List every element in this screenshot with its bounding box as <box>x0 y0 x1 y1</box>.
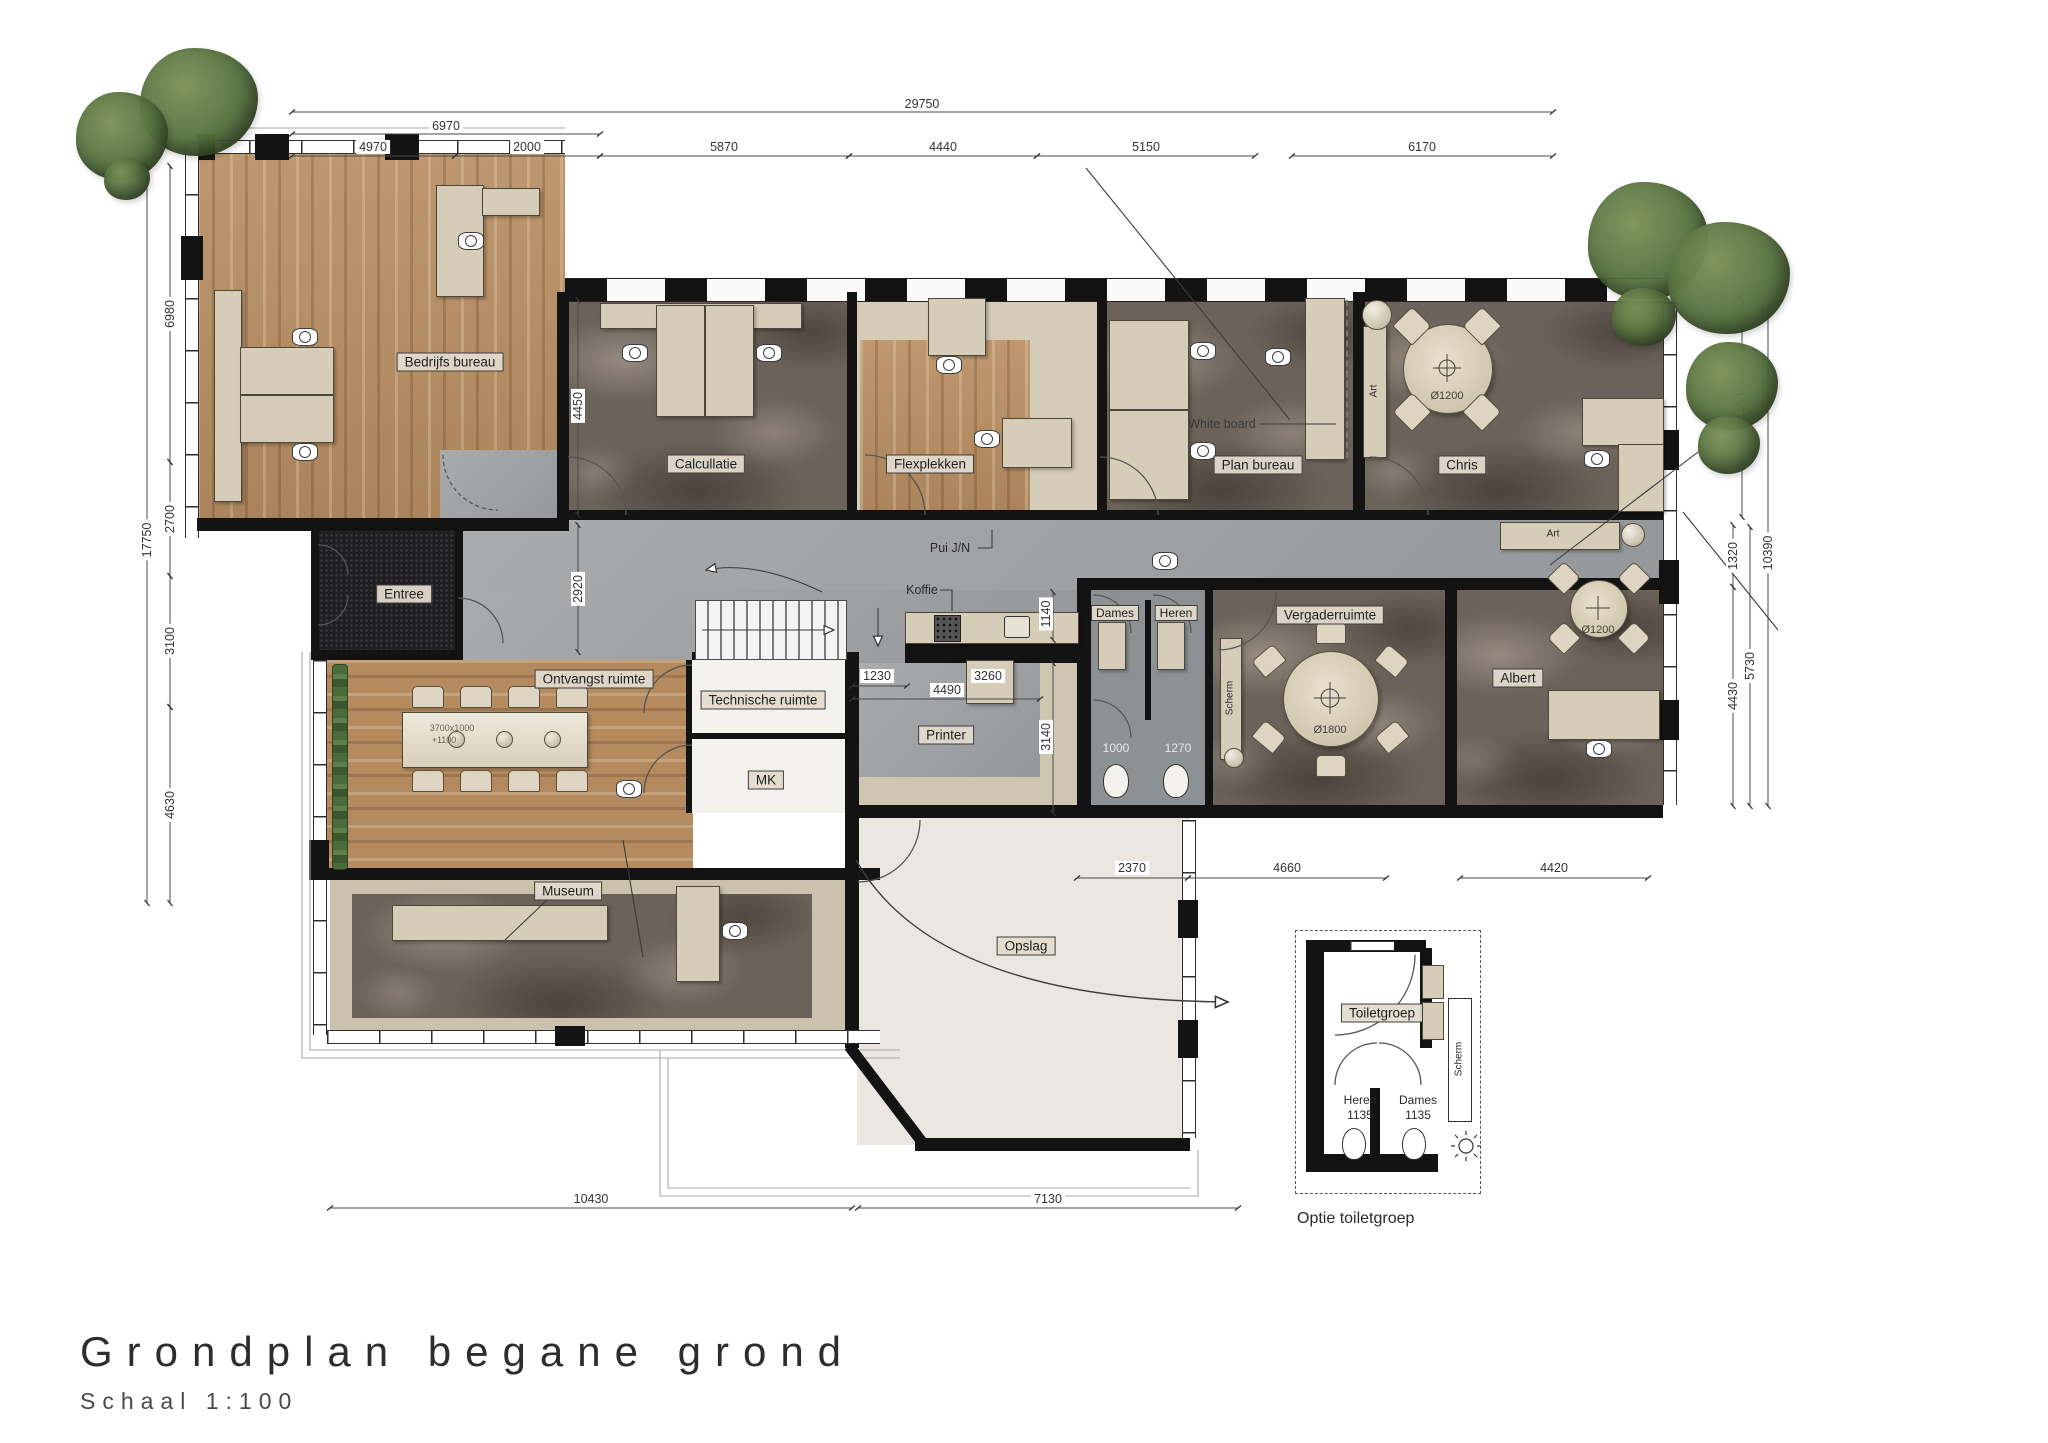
dim-left: 2700 <box>163 502 177 536</box>
person-walking <box>616 780 642 798</box>
dim-left: 3100 <box>163 624 177 658</box>
wall-pier <box>1659 560 1679 604</box>
scherm-annotation: Scherm <box>1225 681 1236 715</box>
room-label-entree: Entree <box>376 585 432 604</box>
dim-right: 4430 <box>1726 679 1740 713</box>
table-grommet <box>544 731 561 748</box>
wall-segment <box>1097 292 1107 520</box>
table-spec: 3700x1000 <box>430 723 475 733</box>
wall-pier <box>1659 700 1679 740</box>
person-at-desk <box>622 344 648 362</box>
dim-interior: 4420 <box>1537 861 1571 875</box>
chair <box>1316 755 1346 777</box>
chair <box>412 770 444 792</box>
dim-interior: 3140 <box>1039 720 1053 754</box>
room-label-vergader: Vergaderruimte <box>1276 606 1384 625</box>
desk <box>1109 410 1189 500</box>
person-walking <box>1152 552 1178 570</box>
person-at-desk <box>1265 348 1291 366</box>
table-diameter: Ø1800 <box>1313 724 1346 736</box>
whiteboard-annotation: White board <box>1188 417 1255 431</box>
room-label-heren: Heren <box>1155 605 1198 621</box>
room-label-albert: Albert <box>1492 669 1543 688</box>
wall-pier <box>555 1026 585 1046</box>
room-label-technische: Technische ruimte <box>701 691 826 710</box>
dim-top: 4970 <box>356 140 390 154</box>
wall-segment <box>1077 590 1091 815</box>
chair <box>556 686 588 708</box>
room-label-planbureau: Plan bureau <box>1214 456 1303 475</box>
dim-interior: 1140 <box>1039 598 1053 631</box>
toilet-icon <box>1163 764 1189 798</box>
dim-bottom: 10430 <box>571 1192 612 1206</box>
inset-caption: Optie toiletgroep <box>1297 1210 1414 1228</box>
sphere-lamp <box>1224 748 1244 768</box>
wall-segment <box>1205 590 1213 805</box>
dim-left: 6980 <box>163 297 177 331</box>
dim-left: 4630 <box>163 788 177 822</box>
art-annotation: Art <box>1547 529 1560 540</box>
wall-pier <box>385 134 419 160</box>
room-label-ontvangst: Ontvangst ruimte <box>535 670 654 689</box>
wall-segment <box>1445 590 1457 805</box>
person-at-desk <box>936 356 962 374</box>
desk <box>482 188 540 216</box>
room-label-opslag: Opslag <box>997 937 1056 956</box>
wc-sink <box>1157 622 1185 670</box>
staircase <box>695 600 847 660</box>
inset-dames-dim: 1135 <box>1405 1108 1431 1122</box>
floor-plan-sheet: Bedrijfs bureau Calcullatie Flexplekken … <box>0 0 2048 1443</box>
room-label-printer: Printer <box>918 726 974 745</box>
wall-pier <box>1178 1020 1198 1058</box>
wall-opslag-bottom <box>915 1138 1190 1151</box>
wall-segment <box>847 292 857 520</box>
room-label-bedrijfs: Bedrijfs bureau <box>397 353 504 372</box>
dim-top: 6170 <box>1405 140 1439 154</box>
wall-museum-top <box>327 868 880 880</box>
person-at-desk <box>756 344 782 362</box>
sideboard <box>1500 522 1620 550</box>
dim-bottom: 7130 <box>1031 1192 1065 1206</box>
wall-pier <box>181 236 203 280</box>
dim-right: 1320 <box>1726 539 1740 573</box>
dim-interior: 1230 <box>860 669 894 683</box>
page-title: Grondplan begane grond <box>80 1328 855 1376</box>
wall-entree-bottom <box>311 650 463 660</box>
dim-interior: 2370 <box>1115 861 1149 875</box>
scherm-annotation: Scherm <box>1454 1042 1465 1076</box>
chair <box>460 770 492 792</box>
window-band <box>327 1030 880 1044</box>
desk <box>676 886 720 982</box>
desk <box>240 395 334 443</box>
cabinet <box>1305 298 1345 460</box>
tree <box>1698 416 1760 474</box>
person-at-desk <box>974 430 1000 448</box>
sphere-lamp <box>1362 300 1392 330</box>
plant-strip <box>332 664 348 870</box>
display-table <box>392 905 608 941</box>
printer-area-platform2 <box>857 777 1040 807</box>
sphere-lamp <box>1621 523 1645 547</box>
person-at-desk <box>292 328 318 346</box>
room-label-mk: MK <box>748 771 784 790</box>
tree <box>1668 222 1790 334</box>
desk <box>1548 690 1660 740</box>
toilet-icon <box>1103 764 1129 798</box>
chair <box>508 686 540 708</box>
corridor-upper <box>440 450 567 520</box>
inset-heren-label: Heren <box>1344 1093 1377 1107</box>
inset-cabinet <box>1422 965 1444 999</box>
wc-sink <box>1098 622 1126 670</box>
room-label-calculatie: Calcullatie <box>667 455 745 474</box>
dim-interior: 1000 <box>1103 741 1130 755</box>
desk <box>1582 398 1664 446</box>
dim-interior: 4450 <box>571 389 585 423</box>
dim-interior: 4660 <box>1270 861 1304 875</box>
toilet-icon <box>1402 1128 1426 1160</box>
chair <box>1316 622 1346 644</box>
person-at-desk <box>292 443 318 461</box>
dim-top: 5870 <box>707 140 741 154</box>
room-label-dames: Dames <box>1091 605 1139 621</box>
wall-segment <box>197 518 569 531</box>
dim-interior: 4490 <box>930 683 964 697</box>
room-label-flexplekken: Flexplekken <box>886 455 974 474</box>
wall-wc-divider <box>1145 600 1151 720</box>
chair <box>556 770 588 792</box>
inset-dames-label: Dames <box>1399 1093 1437 1107</box>
chair <box>508 770 540 792</box>
dim-interior: 1270 <box>1165 741 1192 755</box>
dim-right-total: 10390 <box>1761 533 1775 574</box>
table-diameter: Ø1200 <box>1581 624 1614 636</box>
wall-pier <box>255 134 289 160</box>
desk <box>1618 444 1664 512</box>
table-diameter: Ø1200 <box>1430 390 1463 402</box>
window-band <box>1182 820 1196 1138</box>
inset-label-toiletgroep: Toiletgroep <box>1341 1004 1423 1023</box>
chair <box>412 686 444 708</box>
koffie-annotation: Koffie <box>906 583 938 597</box>
page-subtitle: Schaal 1:100 <box>80 1388 298 1415</box>
sink <box>1004 616 1030 638</box>
inset-heren-dim: 1135 <box>1347 1108 1373 1122</box>
person-at-desk <box>1190 442 1216 460</box>
room-label-chris: Chris <box>1438 456 1486 475</box>
pui-annotation: Pui J/N <box>930 541 970 555</box>
dim-top: 5150 <box>1129 140 1163 154</box>
person-at-desk <box>1586 740 1612 758</box>
toilet-icon <box>1342 1128 1366 1160</box>
person-at-desk <box>458 232 484 250</box>
dim-top: 4440 <box>926 140 960 154</box>
desk <box>240 347 334 395</box>
chair <box>460 686 492 708</box>
person-at-desk <box>722 922 748 940</box>
coffee-machine <box>934 615 961 642</box>
window-band <box>185 142 199 538</box>
dim-interior: 3260 <box>971 669 1005 683</box>
dim-left-total: 17750 <box>140 520 154 561</box>
desk <box>1109 320 1189 410</box>
desk <box>1002 418 1072 468</box>
dim-interior: 2920 <box>571 572 585 606</box>
person-at-desk <box>1584 450 1610 468</box>
desk <box>705 305 754 417</box>
table-grommet <box>496 731 513 748</box>
inset-cabinet <box>1422 1002 1444 1040</box>
whiteboard-line <box>1346 300 1348 458</box>
wall-entree-right <box>455 528 463 660</box>
dim-top: 6970 <box>429 119 463 133</box>
wall-opslag-left <box>845 815 859 1048</box>
desk <box>656 305 705 417</box>
wall-south-wing <box>845 805 1663 818</box>
table-height: +1100 <box>432 735 457 745</box>
dim-top: 2000 <box>510 140 544 154</box>
wall-pier <box>1178 900 1198 938</box>
desk <box>928 298 986 356</box>
tree <box>104 158 150 200</box>
sideboard <box>214 290 242 502</box>
dim-right: 5730 <box>1743 649 1757 683</box>
person-at-desk <box>1190 342 1216 360</box>
inset-window <box>1350 941 1394 951</box>
wall-pier <box>309 840 329 880</box>
art-annotation: Art <box>1369 385 1380 398</box>
dim-top-total: 29750 <box>902 97 943 111</box>
wall-entree-left <box>311 528 319 655</box>
wall-tech-divider <box>692 733 845 739</box>
wall-segment <box>845 652 859 815</box>
room-label-museum: Museum <box>534 882 602 901</box>
facade-top <box>565 278 1663 302</box>
wall-segment <box>557 292 569 520</box>
inset-wall <box>1306 948 1324 1160</box>
wall-segment <box>567 510 1663 520</box>
